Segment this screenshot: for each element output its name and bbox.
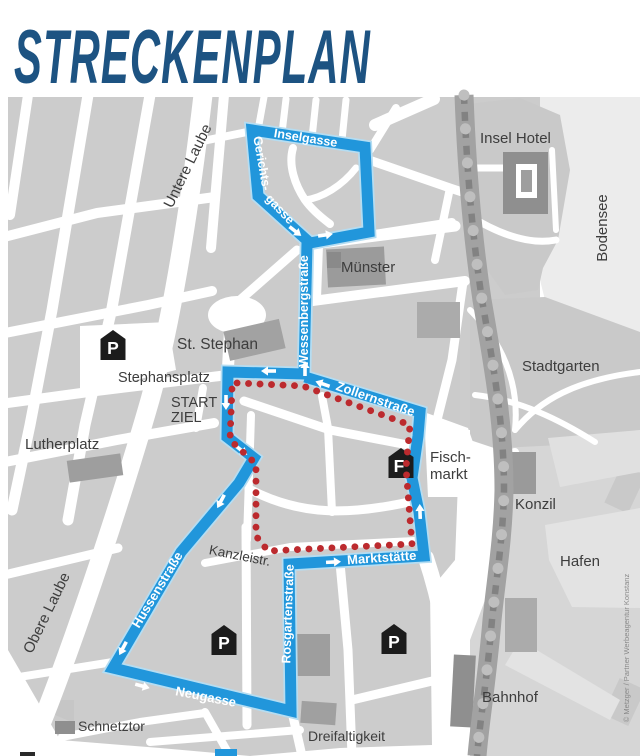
svg-text:P: P [107, 338, 119, 358]
svg-text:Schnetztor: Schnetztor [78, 718, 145, 734]
svg-text:Bodensee: Bodensee [594, 194, 611, 262]
svg-text:ZIEL: ZIEL [171, 410, 202, 426]
svg-text:Stephansplatz: Stephansplatz [118, 370, 210, 386]
svg-text:Wessenbergstraße: Wessenbergstraße [297, 255, 311, 367]
svg-text:markt: markt [430, 466, 468, 483]
svg-text:Stadtgarten: Stadtgarten [522, 358, 600, 375]
svg-text:Insel Hotel: Insel Hotel [480, 130, 551, 147]
svg-text:Konzil: Konzil [515, 496, 556, 513]
svg-text:Fisch-: Fisch- [430, 449, 471, 466]
svg-text:Münster: Münster [341, 259, 395, 276]
svg-text:P: P [218, 633, 230, 653]
svg-text:© Metzger / Partner Werbeagent: © Metzger / Partner Werbeagentur Konstan… [622, 574, 631, 723]
svg-text:P: P [388, 632, 400, 652]
svg-text:F: F [394, 456, 405, 476]
svg-text:Hafen: Hafen [560, 553, 600, 570]
svg-text:Bahnhof: Bahnhof [482, 689, 539, 706]
svg-text:Lutherplatz: Lutherplatz [25, 436, 99, 453]
svg-text:Dreifaltigkeit: Dreifaltigkeit [308, 728, 385, 744]
svg-text:St. Stephan: St. Stephan [177, 336, 258, 353]
svg-text:START: START [171, 395, 217, 411]
